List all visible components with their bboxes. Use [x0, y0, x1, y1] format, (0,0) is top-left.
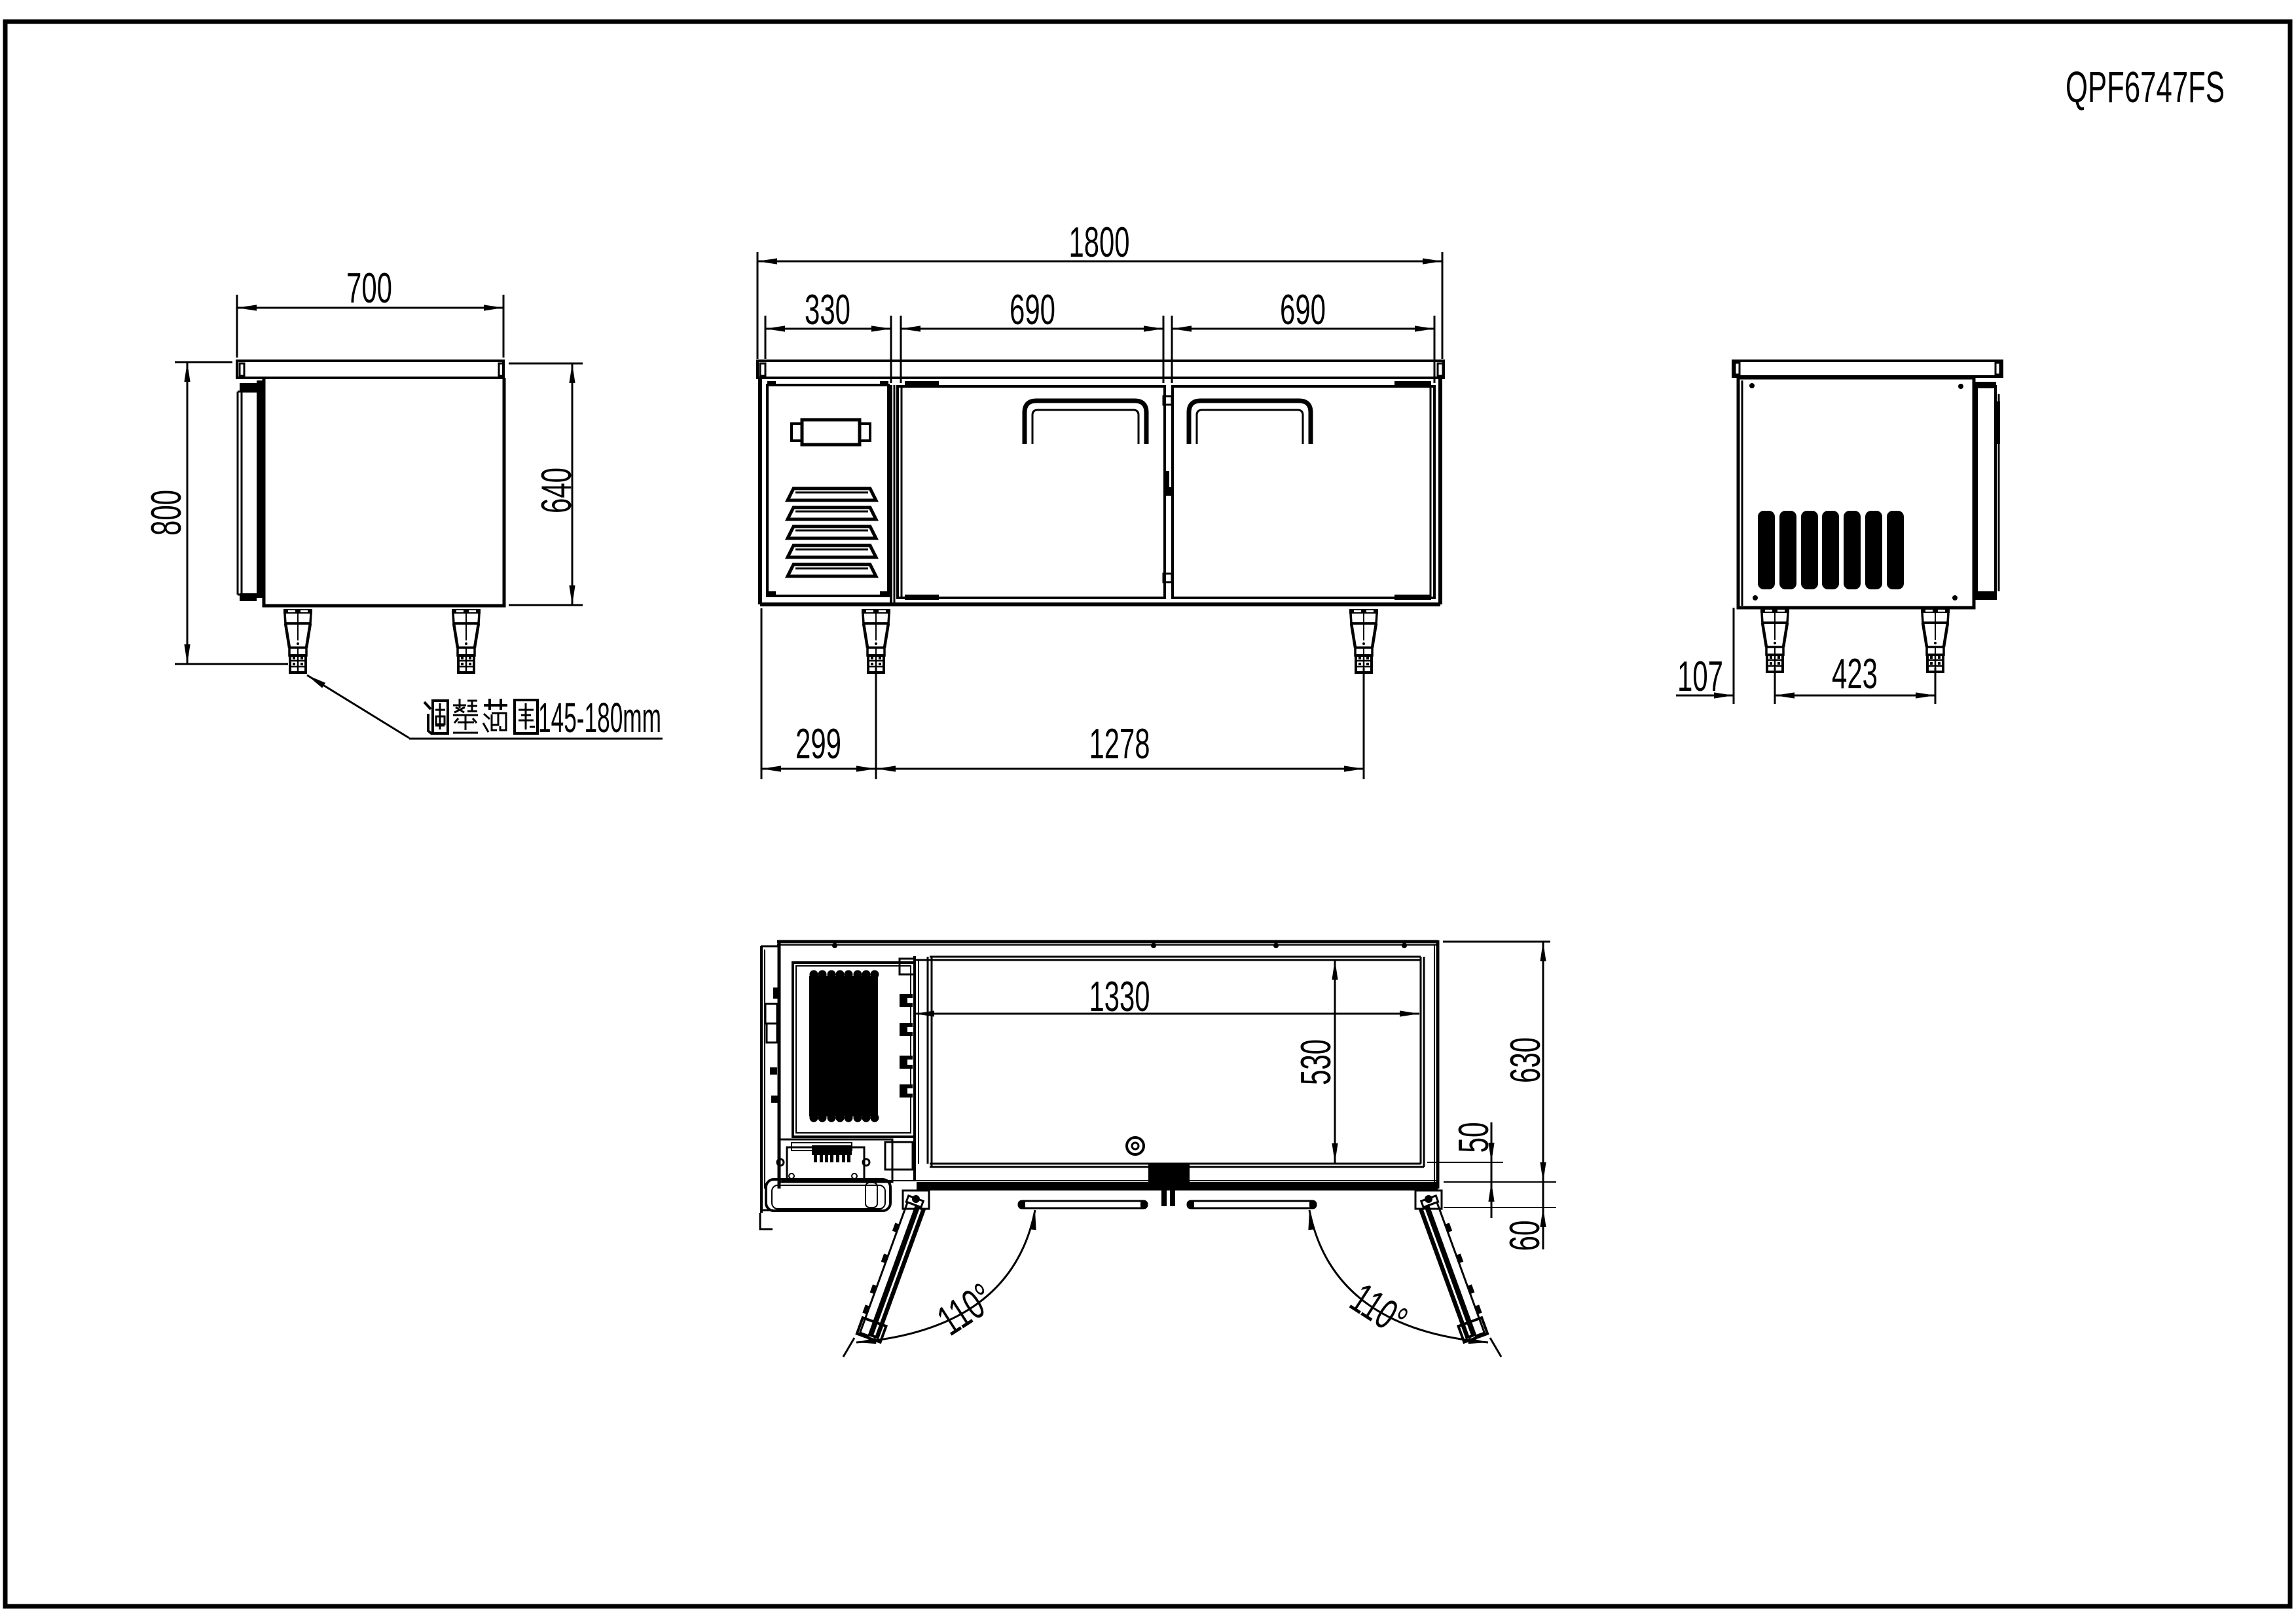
svg-text:330: 330	[805, 286, 850, 333]
svg-text:690: 690	[1010, 286, 1055, 333]
svg-text:530: 530	[1292, 1039, 1339, 1085]
svg-text:800: 800	[142, 490, 190, 536]
svg-text:1800: 1800	[1069, 218, 1130, 266]
svg-text:630: 630	[1501, 1037, 1549, 1083]
svg-text:640: 640	[532, 468, 580, 513]
svg-text:1278: 1278	[1089, 720, 1150, 767]
svg-text:145-180mm: 145-180mm	[538, 694, 661, 741]
svg-text:700: 700	[346, 264, 392, 312]
svg-text:50: 50	[1449, 1122, 1497, 1153]
svg-text:QPF6747FS: QPF6747FS	[2066, 63, 2225, 112]
svg-text:299: 299	[795, 720, 841, 767]
svg-text:423: 423	[1832, 650, 1878, 697]
svg-text:1330: 1330	[1089, 972, 1150, 1020]
svg-text:690: 690	[1280, 286, 1326, 333]
svg-text:60: 60	[1501, 1221, 1548, 1251]
svg-text:107: 107	[1677, 652, 1723, 700]
